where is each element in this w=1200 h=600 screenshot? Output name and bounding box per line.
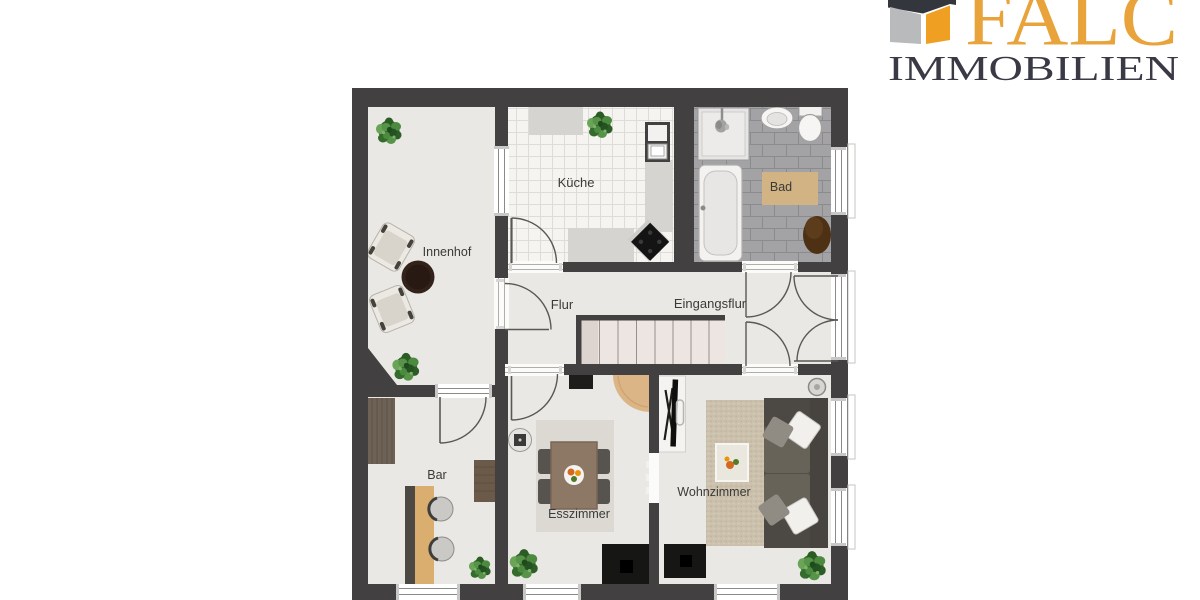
svg-text:Flur: Flur <box>551 297 574 312</box>
svg-text:Bar: Bar <box>427 468 446 482</box>
svg-text:Küche: Küche <box>558 175 595 190</box>
svg-text:Wohnzimmer: Wohnzimmer <box>677 485 750 499</box>
svg-text:Bad: Bad <box>770 180 792 194</box>
svg-text:Esszimmer: Esszimmer <box>548 507 610 521</box>
svg-text:Eingangsflur: Eingangsflur <box>674 296 747 311</box>
svg-text:IMMOBILIEN: IMMOBILIEN <box>888 49 1179 88</box>
svg-text:Innenhof: Innenhof <box>423 245 472 259</box>
